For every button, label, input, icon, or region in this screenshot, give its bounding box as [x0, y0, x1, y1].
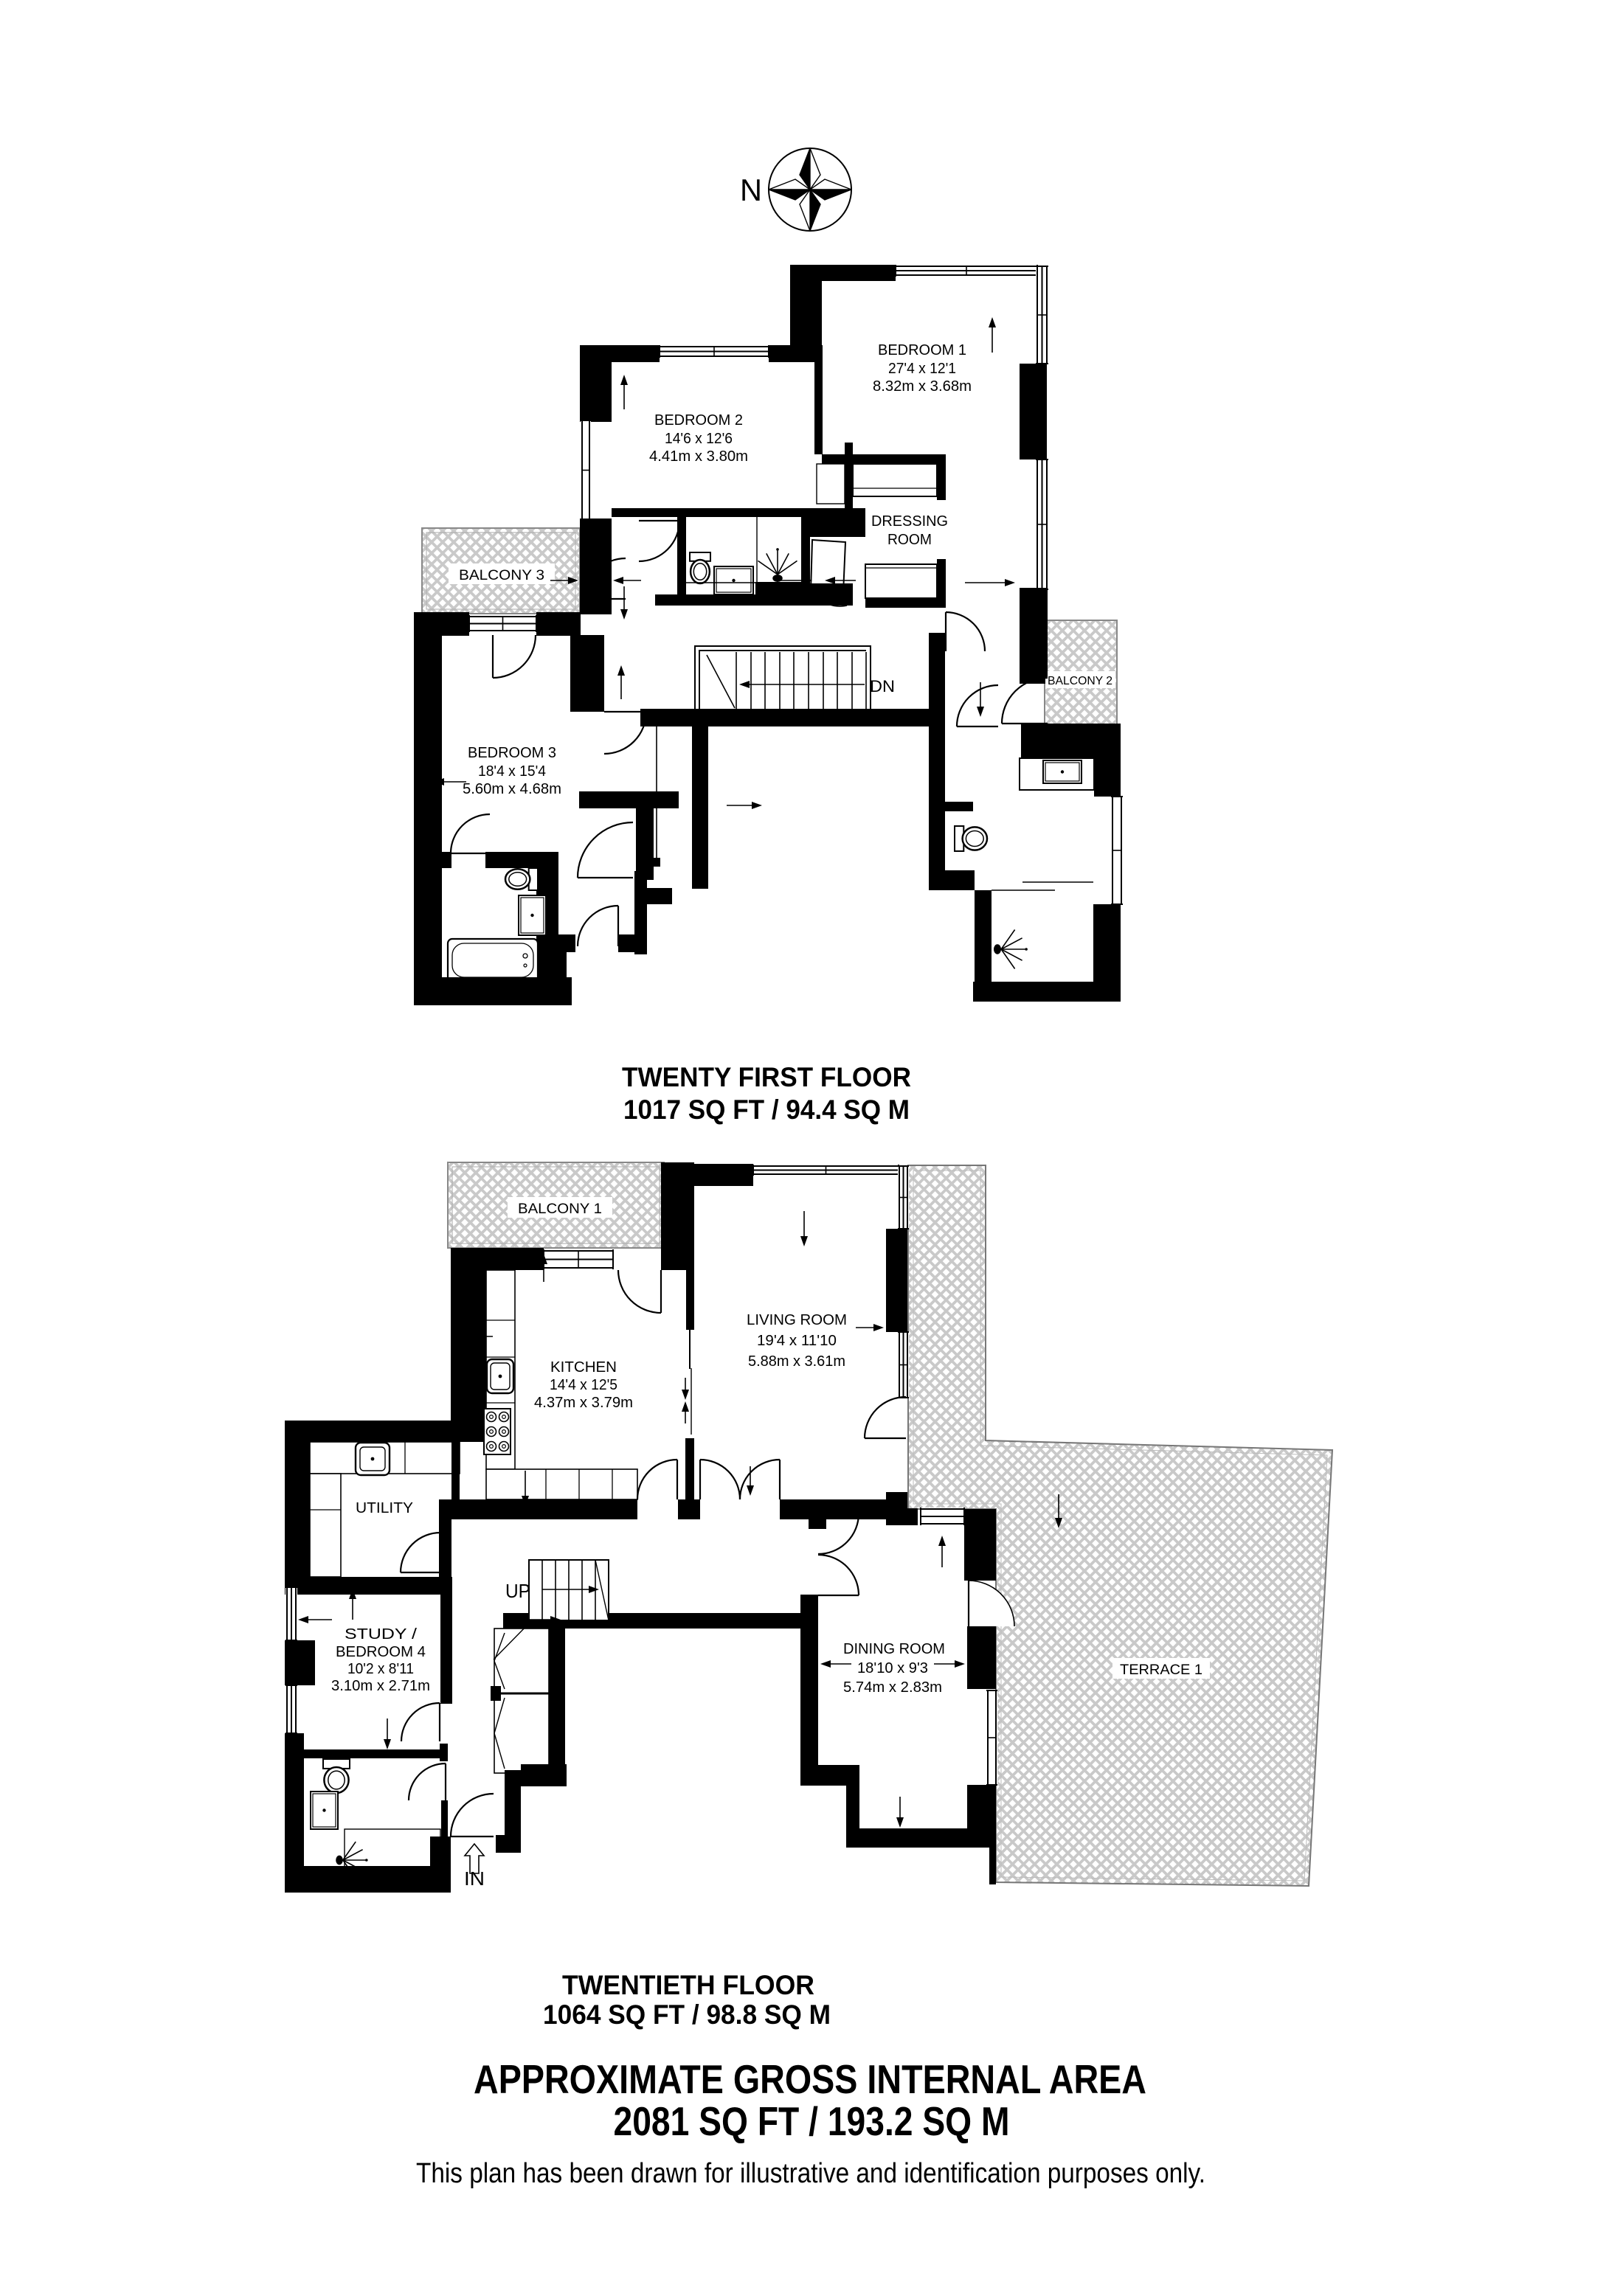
svg-text:BALCONY 1: BALCONY 1: [518, 1201, 602, 1217]
svg-text:1064 SQ FT / 98.8 SQ M: 1064 SQ FT / 98.8 SQ M: [543, 2000, 831, 2030]
svg-text:BEDROOM 3: BEDROOM 3: [468, 745, 556, 761]
svg-text:BALCONY 2: BALCONY 2: [1048, 675, 1112, 687]
svg-text:DINING ROOM: DINING ROOM: [843, 1641, 945, 1657]
svg-text:IN: IN: [464, 1867, 485, 1890]
svg-text:1017 SQ FT / 94.4 SQ M: 1017 SQ FT / 94.4 SQ M: [623, 1095, 910, 1125]
svg-text:This plan has been drawn for i: This plan has been drawn for illustrativ…: [416, 2158, 1205, 2189]
svg-text:3.10m x 2.71m: 3.10m x 2.71m: [331, 1678, 430, 1694]
svg-text:2081 SQ FT / 193.2 SQ M: 2081 SQ FT / 193.2 SQ M: [614, 2098, 1010, 2144]
svg-text:5.60m x 4.68m: 5.60m x 4.68m: [463, 781, 561, 797]
svg-text:TWENTIETH FLOOR: TWENTIETH FLOOR: [562, 1970, 814, 2000]
svg-text:BEDROOM 4: BEDROOM 4: [336, 1644, 426, 1660]
svg-text:DRESSING: DRESSING: [871, 513, 948, 530]
svg-text:18'4 x 15'4: 18'4 x 15'4: [478, 763, 546, 780]
svg-text:KITCHEN: KITCHEN: [550, 1359, 617, 1376]
svg-text:27'4 x 12'1: 27'4 x 12'1: [888, 361, 956, 377]
svg-text:4.41m x 3.80m: 4.41m x 3.80m: [649, 448, 748, 465]
svg-text:14'4 x 12'5: 14'4 x 12'5: [550, 1377, 617, 1393]
svg-text:5.88m x 3.61m: 5.88m x 3.61m: [748, 1353, 845, 1370]
svg-text:N: N: [740, 173, 762, 207]
svg-text:8.32m x 3.68m: 8.32m x 3.68m: [873, 378, 972, 395]
svg-text:14'6 x 12'6: 14'6 x 12'6: [665, 431, 733, 447]
svg-text:UTILITY: UTILITY: [356, 1500, 413, 1516]
svg-text:TWENTY FIRST FLOOR: TWENTY FIRST FLOOR: [622, 1062, 911, 1092]
svg-text:19'4 x 11'10: 19'4 x 11'10: [757, 1333, 837, 1349]
svg-text:BEDROOM 1: BEDROOM 1: [878, 342, 966, 358]
svg-text:DN: DN: [870, 677, 895, 696]
svg-text:5.74m x 2.83m: 5.74m x 2.83m: [843, 1679, 942, 1696]
svg-text:STUDY /: STUDY /: [345, 1626, 418, 1643]
svg-text:UP: UP: [505, 1580, 530, 1602]
svg-text:BEDROOM 2: BEDROOM 2: [654, 412, 743, 429]
svg-text:10'2 x 8'11: 10'2 x 8'11: [347, 1661, 414, 1677]
svg-text:18'10 x 9'3: 18'10 x 9'3: [857, 1660, 928, 1676]
svg-text:APPROXIMATE GROSS INTERNAL ARE: APPROXIMATE GROSS INTERNAL AREA: [474, 2056, 1146, 2102]
svg-text:ROOM: ROOM: [887, 532, 932, 548]
svg-text:LIVING ROOM: LIVING ROOM: [747, 1312, 847, 1328]
svg-text:4.37m x 3.79m: 4.37m x 3.79m: [534, 1395, 633, 1411]
svg-text:TERRACE 1: TERRACE 1: [1120, 1662, 1202, 1678]
svg-text:BALCONY 3: BALCONY 3: [459, 568, 544, 583]
